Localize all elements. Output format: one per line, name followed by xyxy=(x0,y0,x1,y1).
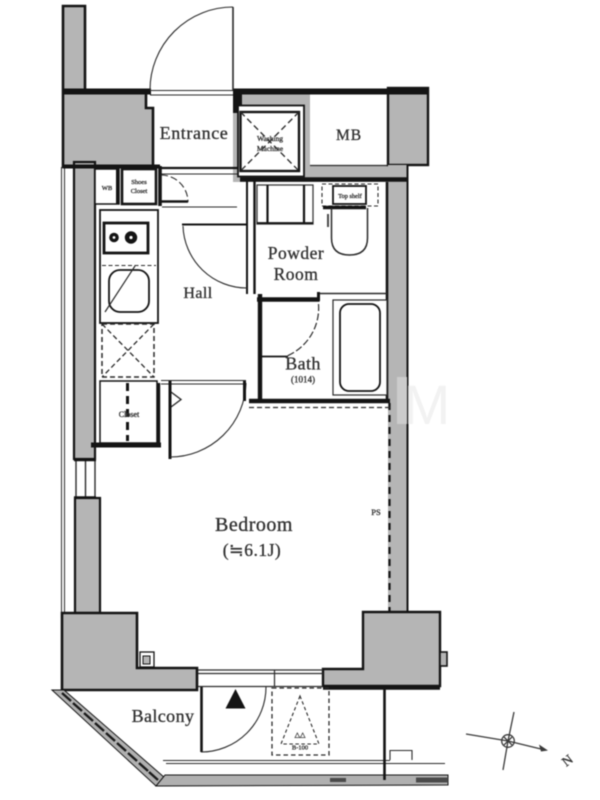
svg-text:(≒6.1J): (≒6.1J) xyxy=(223,540,282,560)
svg-text:Shoes: Shoes xyxy=(131,179,147,186)
svg-text:Top shelf: Top shelf xyxy=(338,193,362,200)
svg-text:Room: Room xyxy=(274,264,319,284)
svg-text:Hall: Hall xyxy=(183,285,212,302)
svg-text:Powder: Powder xyxy=(268,243,324,263)
svg-text:Washing: Washing xyxy=(257,134,283,143)
svg-text:M: M xyxy=(404,373,451,436)
svg-text:Machine: Machine xyxy=(257,144,284,153)
svg-text:△△: △△ xyxy=(295,731,306,739)
svg-text:B-100: B-100 xyxy=(292,745,308,752)
svg-text:Closet: Closet xyxy=(131,188,148,195)
svg-text:MB: MB xyxy=(336,127,362,144)
svg-text:Entrance: Entrance xyxy=(160,123,229,143)
svg-text:(1014): (1014) xyxy=(291,375,315,385)
svg-text:PS: PS xyxy=(371,507,381,517)
svg-text:WB: WB xyxy=(102,185,113,192)
svg-text:Bedroom: Bedroom xyxy=(215,514,293,536)
svg-text:Closet: Closet xyxy=(119,410,140,419)
svg-text:Balcony: Balcony xyxy=(132,706,195,726)
svg-text:Bath: Bath xyxy=(285,354,321,374)
